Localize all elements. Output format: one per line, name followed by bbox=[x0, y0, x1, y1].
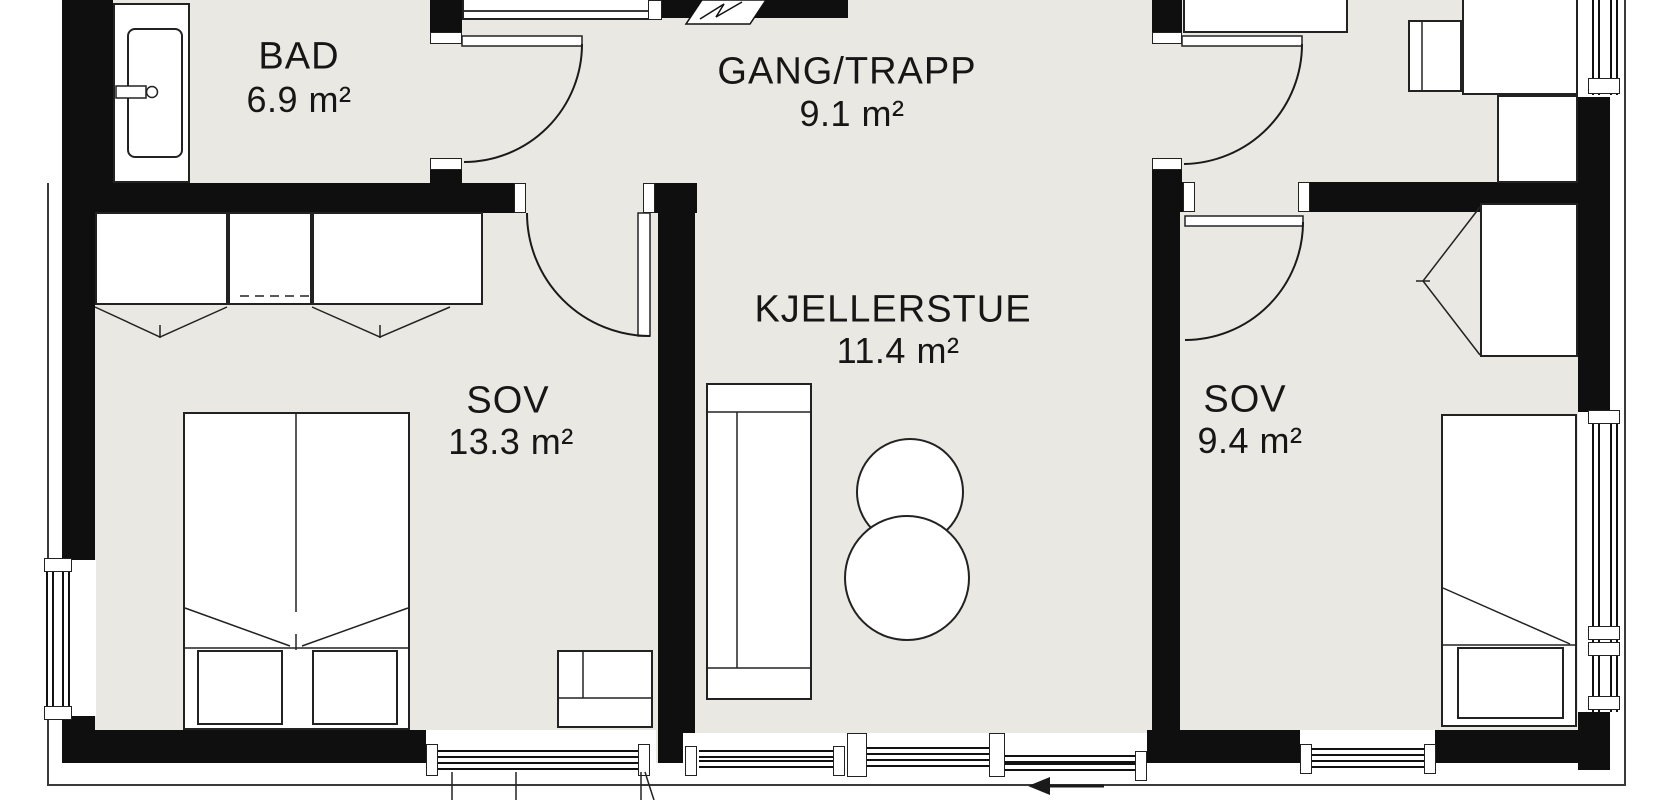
wall-east-corner bbox=[1578, 712, 1610, 770]
door-jamb bbox=[1152, 32, 1182, 44]
wardrobe bbox=[1480, 203, 1578, 357]
room-area-sov-right: 9.4 m² bbox=[1197, 420, 1302, 462]
window-south-sov-left bbox=[432, 750, 644, 770]
wall-west-upper bbox=[62, 183, 95, 565]
room-label-sov-right: SOV bbox=[1203, 379, 1286, 422]
pillow bbox=[197, 650, 283, 725]
window-jamb bbox=[44, 706, 72, 720]
window-jamb bbox=[1135, 751, 1147, 781]
wardrobe bbox=[95, 212, 228, 305]
window-jamb bbox=[1424, 744, 1436, 774]
wall-right-divider-a bbox=[1152, 182, 1185, 212]
window-jamb bbox=[833, 746, 845, 776]
window-jamb bbox=[44, 558, 72, 572]
wall-gang-north bbox=[655, 0, 848, 18]
window-east-sov-right bbox=[1592, 412, 1618, 712]
window-jamb bbox=[1300, 744, 1312, 774]
cabinet bbox=[1497, 95, 1578, 183]
floor-plan: BAD 6.9 m² GANG/TRAPP 9.1 m² KJELLERSTUE… bbox=[0, 0, 1670, 800]
room-label-kjellerstue: KJELLERSTUE bbox=[754, 289, 1031, 332]
exterior-outline-bottom bbox=[47, 784, 1626, 786]
door-jamb bbox=[430, 32, 462, 44]
window-jamb bbox=[1588, 696, 1620, 710]
room-label-sov-left: SOV bbox=[466, 380, 549, 423]
chair bbox=[1408, 20, 1462, 92]
window-jamb bbox=[1588, 626, 1620, 640]
door-jamb bbox=[514, 183, 526, 213]
room-area-kjellerstue: 11.4 m² bbox=[837, 330, 960, 372]
exterior-outline-right bbox=[1624, 0, 1626, 786]
wall-south-kjeller bbox=[1147, 730, 1300, 763]
window-jamb bbox=[989, 733, 1005, 777]
desk bbox=[1462, 0, 1578, 95]
window-jamb bbox=[847, 733, 867, 777]
window-jamb bbox=[685, 746, 697, 776]
window-south-kjeller-1 bbox=[699, 750, 839, 768]
door-jamb bbox=[430, 158, 462, 170]
window-south-kjeller-2 bbox=[867, 747, 989, 767]
wardrobe bbox=[312, 212, 483, 305]
window-jamb bbox=[1588, 642, 1620, 656]
window-jamb bbox=[426, 744, 438, 776]
window-jamb bbox=[1588, 78, 1620, 94]
door-jamb bbox=[1298, 182, 1310, 212]
pillow bbox=[1457, 647, 1564, 719]
room-label-bad: BAD bbox=[258, 36, 339, 79]
window-west bbox=[46, 563, 70, 713]
dresser bbox=[1183, 0, 1348, 33]
room-area-gang: 9.1 m² bbox=[799, 93, 904, 135]
wall-sov-left-east bbox=[658, 183, 695, 763]
door-jamb bbox=[1183, 182, 1195, 212]
stairs-step-line bbox=[464, 10, 656, 12]
wall-south-sov-right bbox=[1435, 730, 1578, 763]
room-label-gang: GANG/TRAPP bbox=[717, 51, 976, 94]
window-jamb bbox=[638, 744, 650, 776]
sofa bbox=[706, 383, 812, 700]
window-south-kjeller-3 bbox=[1005, 755, 1135, 771]
bathtub-basin bbox=[127, 28, 183, 158]
door-jamb bbox=[643, 183, 655, 213]
entrance-arrow-head bbox=[1028, 777, 1050, 795]
wall-kjeller-sov-divider bbox=[1152, 212, 1180, 763]
room-area-sov-left: 13.3 m² bbox=[448, 421, 574, 463]
bedside-table bbox=[557, 650, 653, 728]
window-south-sov-right bbox=[1307, 748, 1427, 768]
window-jamb bbox=[1588, 410, 1620, 424]
stairs-jamb bbox=[648, 0, 662, 20]
wall-south-sov-left bbox=[62, 730, 430, 763]
wall-west-bad bbox=[62, 0, 113, 183]
room-area-bad: 6.9 m² bbox=[246, 79, 351, 121]
wall-east-mid bbox=[1578, 97, 1610, 414]
pillow bbox=[312, 650, 398, 725]
wardrobe bbox=[228, 212, 312, 305]
door-jamb bbox=[1152, 158, 1182, 170]
